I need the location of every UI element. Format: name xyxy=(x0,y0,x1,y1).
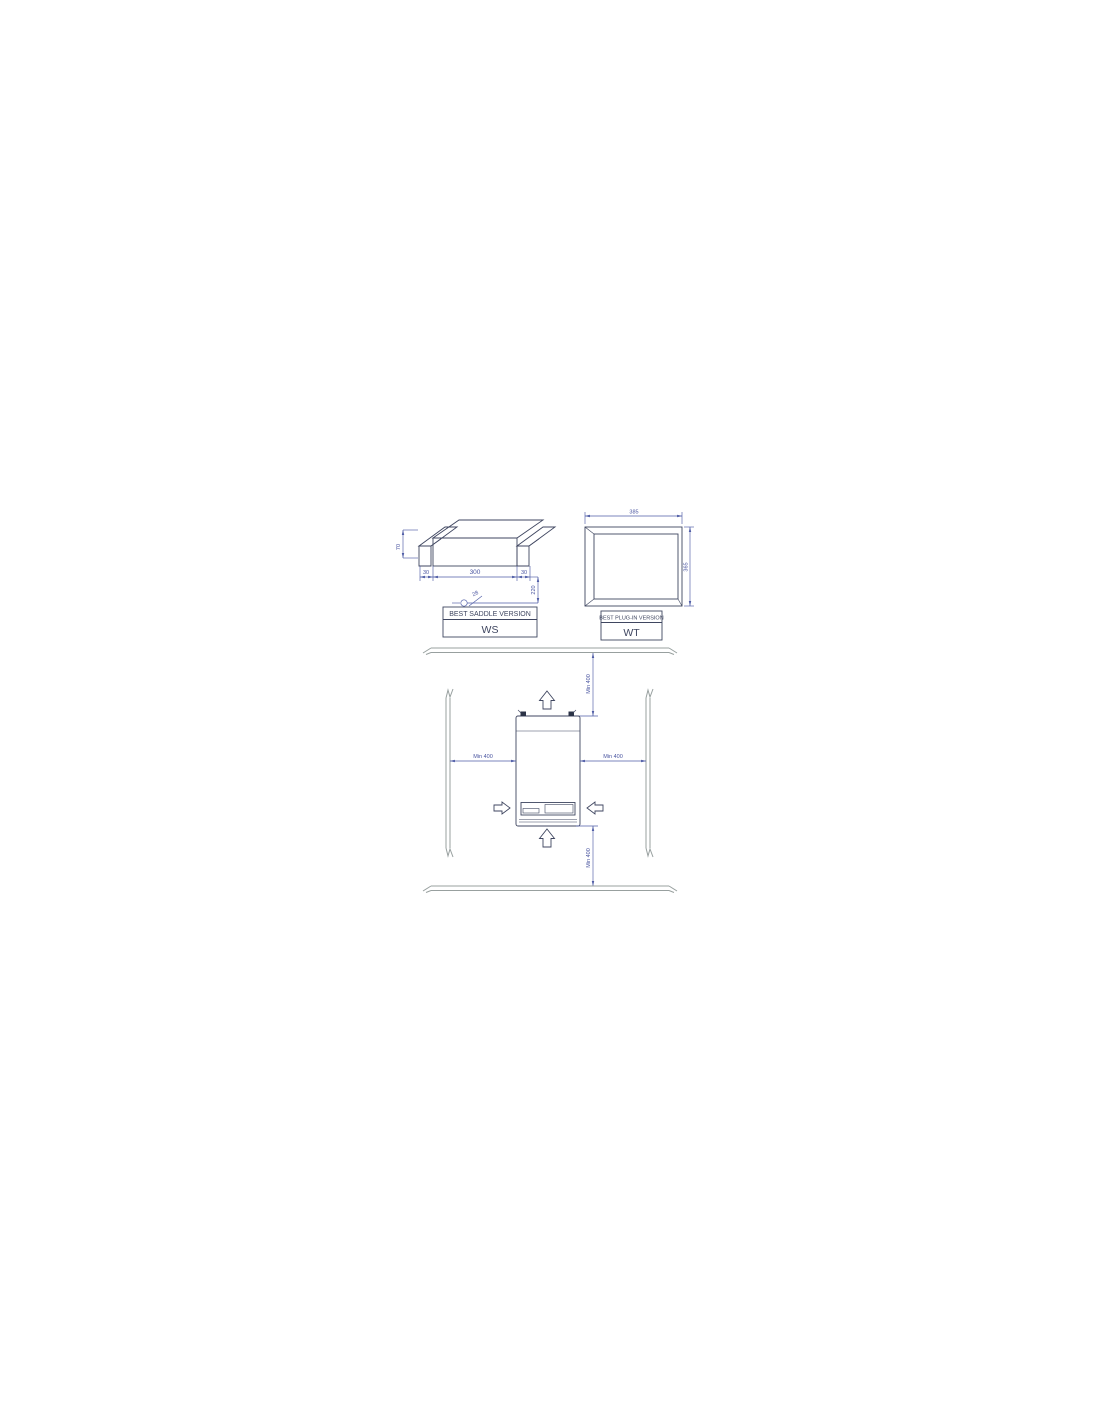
dimension-plugin-width: 385 xyxy=(585,510,682,525)
control-panel-display xyxy=(545,805,573,814)
dim-width-value: 300 xyxy=(470,569,481,576)
ceiling-wall-line xyxy=(423,648,677,655)
hole-symbol xyxy=(461,600,467,606)
drawing-sheet: 70 30 300 30 220 28 xyxy=(0,0,1100,1422)
dim-depth-value: 220 xyxy=(531,585,537,594)
left-wall-line xyxy=(446,689,453,857)
dimension-depth: 220 xyxy=(531,577,538,603)
wt-title: BEST PLUG-IN VERSION xyxy=(599,616,663,622)
ws-saddle-view: 70 30 300 30 220 28 xyxy=(396,520,555,637)
clearance-bottom-value: Min 400 xyxy=(586,848,592,868)
dimension-strap-height: 70 xyxy=(396,530,418,558)
dimension-clearance-bottom: Min 400 xyxy=(576,826,598,886)
mounting-hook-right xyxy=(569,710,577,716)
dim-hole-value: 28 xyxy=(471,590,479,598)
airflow-up-arrow-bottom xyxy=(540,829,555,847)
wt-plugin-view: 385 365 BEST PLUG-IN VERSION WT xyxy=(585,510,694,641)
hole-callout: 28 xyxy=(452,590,538,606)
clearance-top-value: Min 400 xyxy=(586,674,592,694)
airflow-up-arrow-top xyxy=(540,691,555,709)
dimension-clearance-left: Min 400 xyxy=(450,754,516,761)
technical-drawing: 70 30 300 30 220 28 xyxy=(0,0,1100,1422)
plugin-frame xyxy=(585,527,682,606)
label-box-wt: BEST PLUG-IN VERSION WT xyxy=(599,611,663,640)
dim-strap-height-value: 70 xyxy=(396,544,402,550)
label-box-ws: BEST SADDLE VERSION WS xyxy=(443,607,537,637)
ws-title: BEST SADDLE VERSION xyxy=(449,611,531,618)
dimension-width-chain: 30 300 30 xyxy=(420,566,538,581)
dimension-plugin-height: 365 xyxy=(684,527,695,606)
dim-left-flange-value: 30 xyxy=(423,570,429,576)
hood-body xyxy=(516,710,580,826)
airflow-arrow-left xyxy=(494,802,510,814)
control-panel-slider xyxy=(523,809,539,814)
dim-plugin-height-value: 365 xyxy=(684,562,690,571)
wt-code: WT xyxy=(623,627,640,639)
dim-right-flange-value: 30 xyxy=(521,570,527,576)
airflow-arrow-right xyxy=(587,802,603,814)
right-wall-line xyxy=(646,689,653,857)
saddle-body xyxy=(419,520,555,566)
floor-break-line xyxy=(423,886,677,893)
control-panel xyxy=(521,803,575,816)
clearance-right-value: Min 400 xyxy=(603,754,623,760)
clearance-left-value: Min 400 xyxy=(473,754,493,760)
dimension-clearance-top: Min 400 xyxy=(576,653,598,716)
mounting-hook-left xyxy=(518,710,526,716)
dimension-clearance-right: Min 400 xyxy=(580,754,646,761)
ws-code: WS xyxy=(482,624,499,636)
dim-plugin-width-value: 385 xyxy=(629,510,638,516)
installation-clearance-view: Min 400 xyxy=(423,648,677,893)
